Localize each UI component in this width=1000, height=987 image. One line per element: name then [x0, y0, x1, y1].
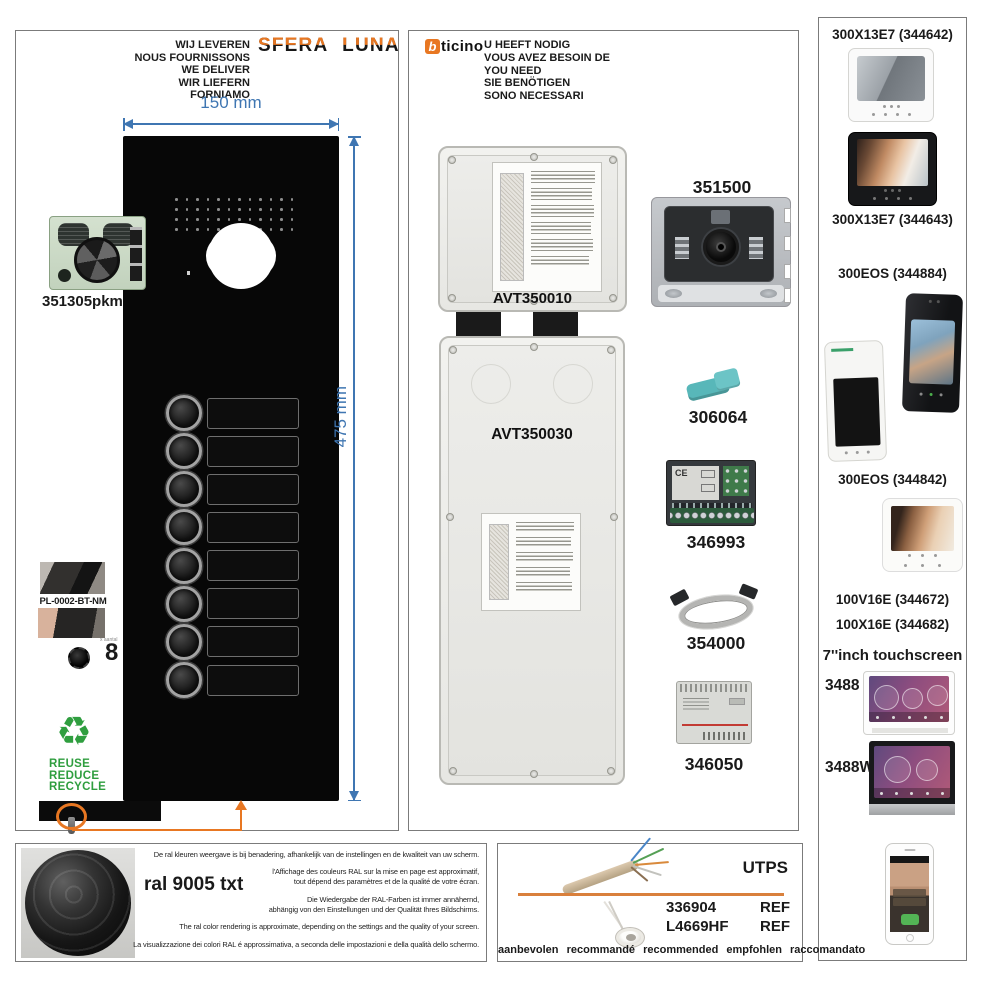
- device-label-3488w: 3488W: [825, 759, 874, 777]
- camera-lens: [703, 229, 739, 265]
- microphone-hole: [58, 269, 71, 282]
- bticino-logo-text: ticino: [441, 38, 483, 55]
- button-count: 8: [105, 639, 118, 667]
- led-cluster: [749, 237, 763, 259]
- text-line: Die Wiedergabe der RAL-Farben ist immer …: [133, 895, 479, 905]
- recycle-icon: ♻: [56, 711, 92, 753]
- screw-slot: [760, 289, 777, 298]
- ref-suffix: REF: [760, 918, 790, 935]
- ribbon-cable-image: [671, 586, 759, 634]
- product-sheet: WIJ LEVERENNOUS FOURNISSONSWE DELIVERWIR…: [0, 0, 1000, 987]
- recommended-line: aanbevolen recommandé recommended empfoh…: [498, 944, 802, 956]
- release-key-code: 306064: [663, 407, 773, 428]
- device-label-3488: 3488: [825, 677, 859, 695]
- phone-speaker: [904, 849, 915, 851]
- flush-box-top-code: AVT350010: [440, 290, 625, 307]
- text-line: De ral kleuren weergave is bij benaderin…: [133, 850, 479, 860]
- text-line: WIJ LEVEREN: [134, 39, 250, 52]
- interface-module-image: CE: [666, 460, 756, 526]
- nameplate-install-photo: [40, 562, 105, 594]
- wall-diagram: [500, 173, 524, 281]
- camera-module-image: [651, 197, 791, 307]
- disclaimer-paragraph: La visualizzazione dei colori RAL é appr…: [133, 940, 479, 950]
- callout-line: [72, 829, 242, 831]
- divider-line: [518, 893, 784, 896]
- arrow-up-icon: [349, 136, 359, 146]
- nameplate-insert-photo: [38, 608, 105, 638]
- call-button: [166, 586, 202, 622]
- ral-color-sample-image: [21, 848, 135, 958]
- name-plate: [207, 398, 299, 429]
- screw-icon: [448, 156, 456, 164]
- screw-icon: [530, 153, 538, 161]
- terminal-block: [670, 508, 754, 523]
- screw-icon: [446, 513, 454, 521]
- screw-icon: [449, 346, 457, 354]
- screw-icon: [609, 156, 617, 164]
- ral-disclaimer-panel: ral 9005 txt De ral kleuren weergave is …: [15, 843, 487, 962]
- call-button: [166, 471, 202, 507]
- cable-ref-row: L4669HF REF: [666, 918, 790, 935]
- cable-ref-row: 336904 REF: [666, 899, 790, 916]
- cable-connector: [669, 589, 689, 607]
- monitor-black-image: [848, 132, 937, 206]
- camera-module-code: 351500: [667, 177, 777, 198]
- disclaimer-paragraph: The ral color rendering is approximate, …: [133, 922, 479, 932]
- cable-references: 336904 REF L4669HF REF: [666, 899, 790, 937]
- ref-code: L4669HF: [666, 918, 729, 935]
- camera-knob: [74, 237, 120, 283]
- nameplate-code: PL-0002-BT-NM: [34, 596, 112, 607]
- touchscreen-black-image: [869, 741, 955, 815]
- width-dimension-line: [123, 123, 339, 125]
- text-line: The ral color rendering is approximate, …: [133, 922, 479, 932]
- twisted-pair-coil-image: [593, 901, 653, 949]
- text-line: NOUS FOURNISSONS: [134, 52, 250, 65]
- you-need-text: U HEEFT NODIGVOUS AVEZ BESOIN DEYOU NEED…: [484, 39, 610, 103]
- instruction-sticker: [481, 513, 581, 611]
- knockout-circle: [471, 364, 511, 404]
- text-line: YOU NEED: [484, 65, 610, 78]
- sfera-luna-logo: SFERA LUNA SFERA LUNA: [258, 35, 398, 59]
- text-line: abhängig von den Einstellungen und der Q…: [133, 905, 479, 915]
- smartphone-image: [885, 843, 934, 945]
- disclaimer-paragraph: Die Wiedergabe der RAL-Farben ist immer …: [133, 895, 479, 915]
- text-line: SONO NECESSARI: [484, 90, 610, 103]
- we-deliver-panel: WIJ LEVERENNOUS FOURNISSONSWE DELIVERWIR…: [15, 30, 399, 831]
- bticino-logo: b ticino: [425, 38, 483, 55]
- camera-window-circle: [208, 223, 274, 289]
- monitor-classe100-image: [882, 498, 963, 572]
- you-need-panel: b ticino U HEEFT NODIGVOUS AVEZ BESOIN D…: [408, 30, 799, 831]
- wall-diagram: [489, 524, 509, 600]
- led-hole: [187, 271, 190, 275]
- device-label-344672: 100V16E (344672): [819, 592, 966, 607]
- highlight-circle: [56, 803, 87, 830]
- name-plate: [207, 474, 299, 505]
- home-button-icon: [906, 934, 914, 942]
- screw-icon: [449, 767, 457, 775]
- flush-box-top-image: AVT350010: [438, 146, 627, 312]
- flush-box-bottom-image: AVT350030: [439, 336, 625, 785]
- device-label-344643: 300X13E7 (344643): [819, 212, 966, 227]
- text-line: U HEEFT NODIG: [484, 39, 610, 52]
- disclaimer-paragraph: De ral kleuren weergave is bij benaderin…: [133, 850, 479, 860]
- power-supply-code: 346050: [659, 754, 769, 775]
- screw-icon: [610, 513, 618, 521]
- call-button: [166, 395, 202, 431]
- release-key-image: [685, 366, 741, 406]
- width-dimension-label: 150 mm: [123, 93, 339, 113]
- cable-recommendation-panel: UTPS 336904 REF L4669HF REF aanbevolen r…: [497, 843, 803, 962]
- bticino-logo-b: b: [425, 39, 440, 54]
- eos-white-image: [824, 340, 887, 462]
- entrance-panel-image: [123, 136, 339, 801]
- name-plate: [207, 550, 299, 581]
- light-sensor: [711, 210, 730, 224]
- device-label-344842: 300EOS (344842): [819, 472, 966, 487]
- ref-suffix: REF: [760, 899, 790, 916]
- instruction-sticker: [492, 162, 602, 292]
- text-line: RECYCLE: [49, 782, 106, 794]
- speaker-module-image: [49, 216, 146, 290]
- screw-icon: [607, 346, 615, 354]
- text-line: SIE BENÖTIGEN: [484, 77, 610, 90]
- interface-module-code: 346993: [661, 532, 771, 553]
- answer-button-icon: [901, 914, 919, 925]
- led-cluster: [675, 237, 689, 259]
- touchscreen-heading: 7''inch touchscreen: [819, 647, 966, 664]
- ref-code: 336904: [666, 899, 716, 916]
- utps-label: UTPS: [743, 858, 788, 878]
- screw-slot: [665, 289, 682, 298]
- text-line: tout dépend des paramètres et de la qual…: [133, 877, 479, 887]
- arrow-left-icon: [123, 119, 133, 129]
- device-label-344884: 300EOS (344884): [819, 266, 966, 281]
- callout-arrow-icon: [235, 800, 247, 810]
- monitor-white-image: [848, 48, 934, 122]
- device-label-344682: 100X16E (344682): [819, 617, 966, 632]
- compatible-devices-panel: 300X13E7 (344642) 300X13E7 (344643) 300E…: [818, 17, 967, 961]
- speaker-module-code: 351305pkm: [42, 293, 123, 310]
- text-line: REUSE: [49, 759, 106, 771]
- call-button: [166, 662, 202, 698]
- device-label-344642: 300X13E7 (344642): [819, 27, 966, 42]
- screw-icon: [530, 770, 538, 778]
- call-button: [166, 548, 202, 584]
- text-line: WE DELIVER: [134, 64, 250, 77]
- power-supply-image: [676, 681, 752, 744]
- call-button: [166, 433, 202, 469]
- knockout-circle: [553, 364, 593, 404]
- name-plate: [207, 626, 299, 657]
- screw-icon: [607, 767, 615, 775]
- button-icon: [68, 647, 90, 669]
- name-plate: [207, 588, 299, 619]
- height-dimension-label: 475 mm: [331, 386, 351, 447]
- flush-box-bottom-code: AVT350030: [441, 426, 623, 444]
- call-button: [166, 624, 202, 660]
- ribbon-cable-code: 354000: [661, 633, 771, 654]
- name-plate: [207, 436, 299, 467]
- callout-line-vertical: [240, 809, 242, 831]
- ce-mark: CE: [672, 466, 719, 500]
- height-dimension-line: [353, 136, 355, 801]
- name-plate: [207, 665, 299, 696]
- terminal-strip: [130, 227, 142, 281]
- disclaimer-paragraph: l'Affichage des couleurs RAL sur la mise…: [133, 867, 479, 887]
- text-line: WIR LIEFERN: [134, 77, 250, 90]
- ral-disclaimer-text: De ral kleuren weergave is bij benaderin…: [133, 850, 479, 957]
- eos-black-image: [902, 293, 963, 413]
- text-line: VOUS AVEZ BESOIN DE: [484, 52, 610, 65]
- touchscreen-white-image: [863, 671, 955, 735]
- terminal-chip: [723, 466, 749, 496]
- name-plate: [207, 512, 299, 543]
- screw-icon: [530, 343, 538, 351]
- text-line: l'Affichage des couleurs RAL sur la mise…: [133, 867, 479, 877]
- text-line: La visualizzazione dei colori RAL é appr…: [133, 940, 479, 950]
- call-button: [166, 509, 202, 545]
- recycle-text: REUSEREDUCERECYCLE: [49, 759, 106, 794]
